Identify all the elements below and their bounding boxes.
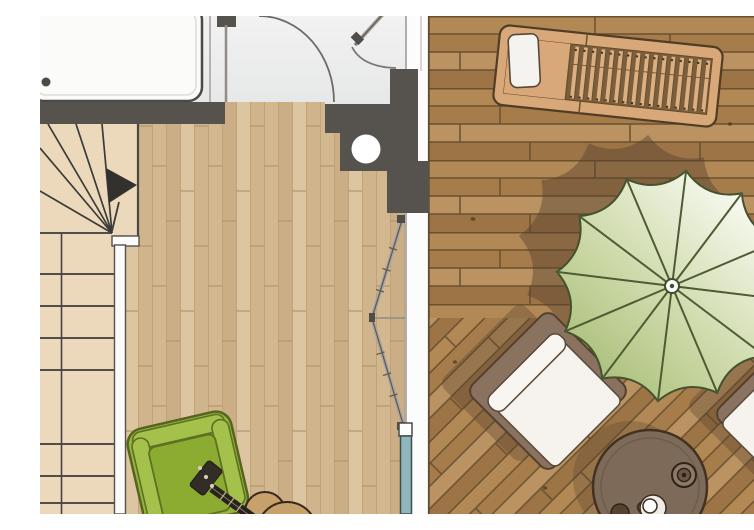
glass-balustrade <box>115 245 126 514</box>
stair-flight-area <box>40 235 114 514</box>
column-circle <box>352 135 381 164</box>
doorway-floor <box>225 102 325 126</box>
floor-plan <box>40 16 754 514</box>
terrace <box>428 16 754 514</box>
glass-door-post <box>399 423 412 436</box>
sash-hinge-upper <box>397 215 405 223</box>
bathtub-drain <box>42 78 51 87</box>
wall-band <box>40 102 225 124</box>
bathtub <box>40 16 202 101</box>
lounger-pillow <box>508 33 541 87</box>
parasol-pole-center <box>670 284 674 288</box>
teal-glass-door <box>401 436 412 514</box>
sash-meeting-block <box>369 313 375 322</box>
staircase <box>40 124 139 514</box>
ashtray <box>672 463 696 487</box>
